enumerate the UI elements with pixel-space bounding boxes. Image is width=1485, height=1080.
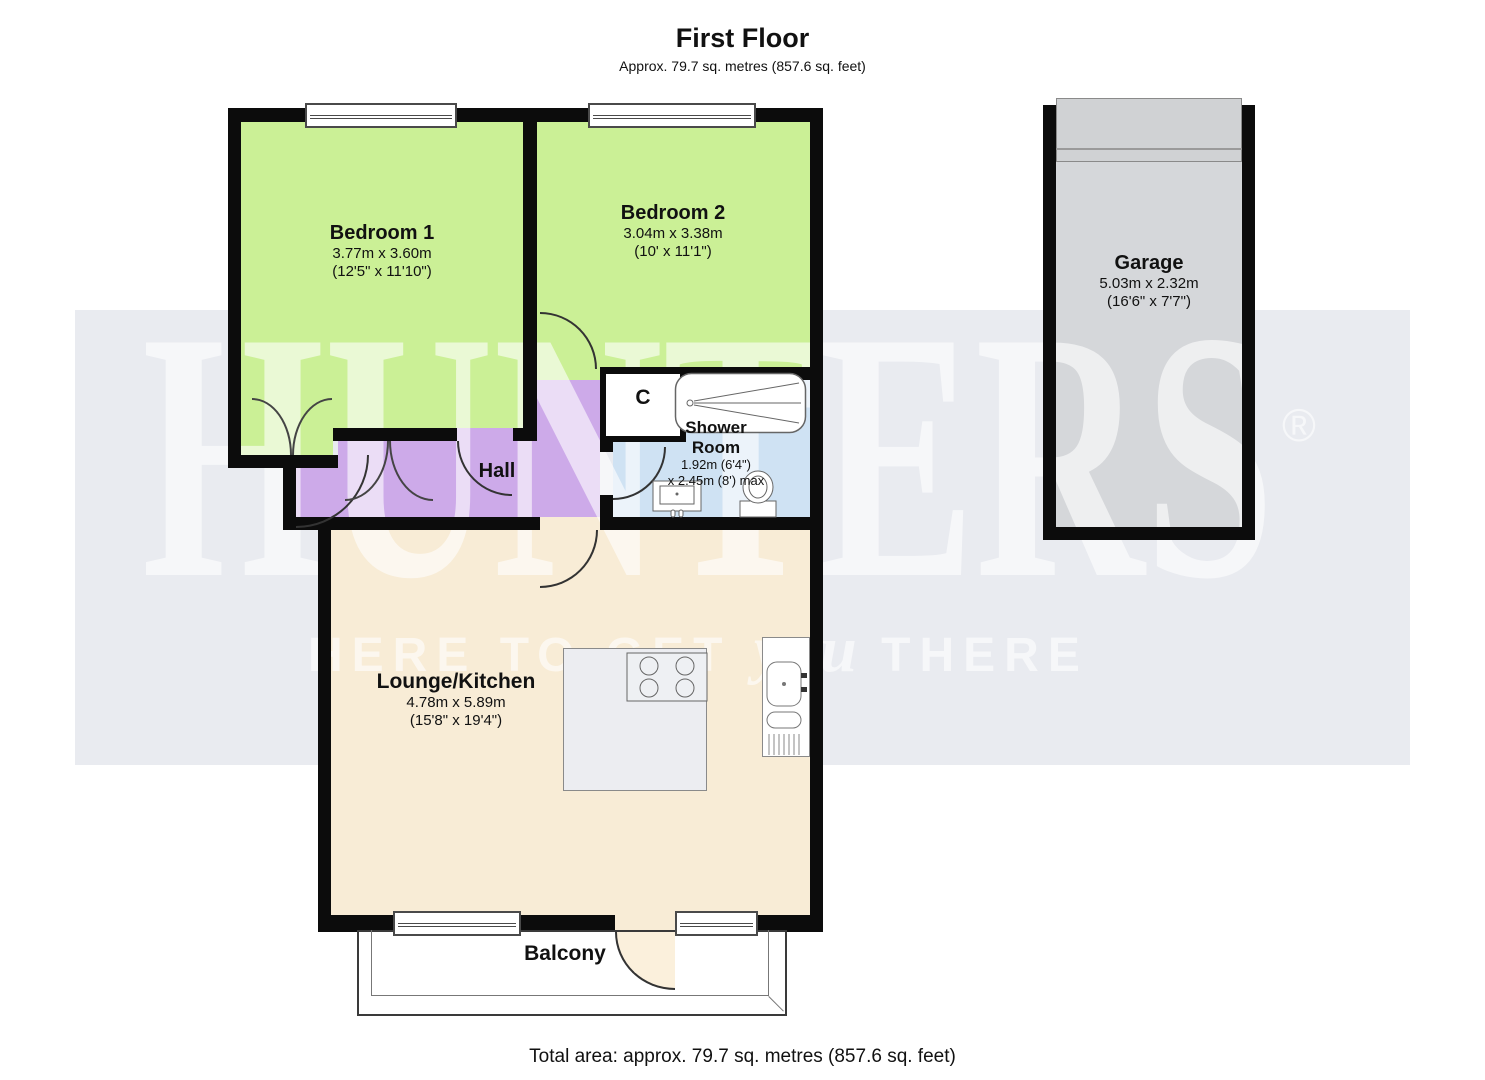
wall-garage-right <box>1242 105 1255 540</box>
garage-door <box>1056 98 1242 162</box>
sink-drainer-icon <box>764 660 808 756</box>
cupboard-label: C <box>635 386 650 409</box>
window-lounge-left <box>393 911 521 936</box>
wall-garage-bottom <box>1043 527 1255 540</box>
wall-hall-bottom <box>335 517 540 530</box>
bedroom1-label: Bedroom 1 3.77m x 3.60m (12'5" x 11'10") <box>262 222 502 282</box>
wall-bedroom-divider <box>523 108 537 428</box>
lounge-label: Lounge/Kitchen 4.78m x 5.89m (15'8" x 19… <box>336 670 576 731</box>
shower-room-label: Shower Room 1.92m (6'4") x 2.45m (8') ma… <box>641 418 791 490</box>
garage-door-line <box>1056 148 1242 150</box>
window-lounge-right <box>675 911 758 936</box>
total-area-text: Total area: approx. 79.7 sq. metres (857… <box>0 1046 1485 1068</box>
bedroom2-label: Bedroom 2 3.04m x 3.38m (10' x 11'1") <box>553 202 793 262</box>
wall-shower-bottom <box>600 517 823 530</box>
watermark-registered-icon: ® <box>1282 398 1316 452</box>
garage-label: Garage 5.03m x 2.32m (16'6" x 7'7") <box>1029 252 1269 312</box>
window-bedroom2 <box>588 103 756 128</box>
page-subtitle: Approx. 79.7 sq. metres (857.6 sq. feet) <box>0 58 1485 74</box>
page-title: First Floor <box>0 24 1485 54</box>
plan-title-block: First Floor Approx. 79.7 sq. metres (857… <box>0 24 1485 74</box>
wall-garage-left <box>1043 105 1056 540</box>
wall-lounge-left <box>318 517 331 932</box>
wall-left-bedroom1 <box>228 108 241 468</box>
wall-bedroom1-bottom-a <box>333 428 457 441</box>
hall-label: Hall <box>447 460 547 483</box>
window-bedroom1 <box>305 103 457 128</box>
tagline-after: THERE <box>859 629 1089 682</box>
hob-icon <box>626 652 708 702</box>
balcony-label: Balcony <box>465 942 665 966</box>
wall-bedroom1-bottom-b <box>513 428 537 441</box>
floorplan-page: First Floor Approx. 79.7 sq. metres (857… <box>0 0 1485 1080</box>
